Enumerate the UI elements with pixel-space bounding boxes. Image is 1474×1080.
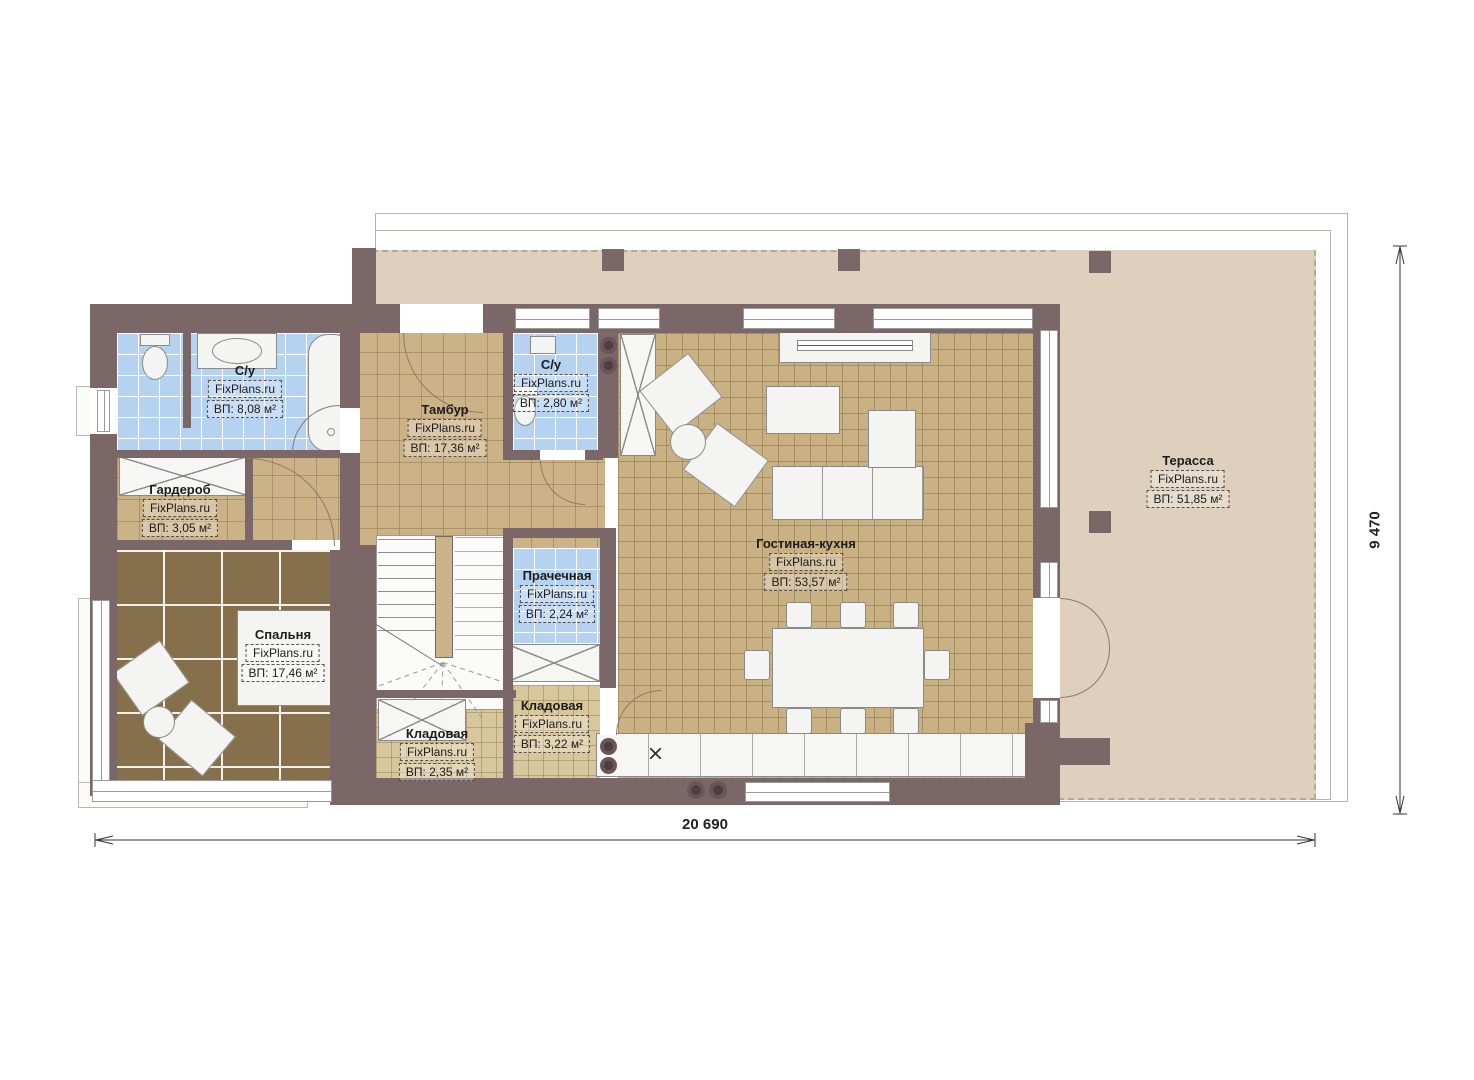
dining-chair <box>840 708 866 734</box>
room-area: ВП: 17,46 м² <box>242 664 325 682</box>
room-label-storage-a: Кладовая FixPlans.ru ВП: 2,35 м² <box>399 726 475 781</box>
sofa-main-symbol <box>772 466 924 520</box>
wall-corner-stub <box>1055 738 1110 765</box>
room-area: ВП: 8,08 м² <box>207 400 283 418</box>
room-label-wardrobe: Гардероб FixPlans.ru ВП: 3,05 м² <box>142 482 218 537</box>
wall-right-mid <box>1033 508 1060 562</box>
wall-bathsmall-bottom-a <box>503 450 540 460</box>
room-name: С/у <box>235 363 255 378</box>
dining-chair <box>786 708 812 734</box>
terrace-pillar <box>838 249 860 271</box>
dimension-height: 9 470 <box>1386 243 1414 817</box>
window-kitchen-bottom <box>745 782 890 802</box>
room-area: ВП: 51,85 м² <box>1147 490 1230 508</box>
window-right-2 <box>1040 562 1058 598</box>
room-watermark: FixPlans.ru <box>514 374 588 392</box>
terrace-pillar <box>602 249 624 271</box>
room-name: Кладовая <box>406 726 468 741</box>
room-watermark: FixPlans.ru <box>408 419 482 437</box>
stair-treads-upper <box>455 537 503 657</box>
window-top-1 <box>515 308 590 329</box>
room-label-vestibule: Тамбур FixPlans.ru ВП: 17,36 м² <box>404 402 487 457</box>
room-area: ВП: 53,57 м² <box>765 573 848 591</box>
room-label-laundry: Прачечная FixPlans.ru ВП: 2,24 м² <box>519 568 595 623</box>
dimension-width-label: 20 690 <box>92 816 1318 833</box>
wall-hall-bath-lower <box>340 453 360 548</box>
room-name: Терасса <box>1162 453 1214 468</box>
washer-drum <box>600 357 617 374</box>
coffee-table-round <box>670 424 706 460</box>
room-label-terrace: Терасса FixPlans.ru ВП: 51,85 м² <box>1147 453 1230 508</box>
dimension-height-line <box>1386 243 1414 817</box>
wall-bedroom-right <box>330 545 376 778</box>
room-watermark: FixPlans.ru <box>520 585 594 603</box>
kitchen-counter <box>596 733 1035 777</box>
dining-chair <box>893 708 919 734</box>
room-area: ВП: 2,80 м² <box>513 394 589 412</box>
room-name: Тамбур <box>421 402 468 417</box>
room-area: ВП: 17,36 м² <box>404 439 487 457</box>
stair-winder-line <box>443 662 510 685</box>
terrace-pillar <box>1089 251 1111 273</box>
boiler-drum <box>600 738 617 755</box>
bathroom-door-opening <box>340 408 360 453</box>
dining-chair <box>744 650 770 680</box>
room-watermark: FixPlans.ru <box>246 644 320 662</box>
wall-bath-partition <box>183 333 191 428</box>
room-watermark: FixPlans.ru <box>1151 470 1225 488</box>
small-sink-symbol <box>530 336 556 354</box>
window-right-3 <box>1040 700 1058 723</box>
window-right-1 <box>1040 330 1058 508</box>
entrance-door-opening <box>400 304 483 333</box>
room-label-bedroom: Спальня FixPlans.ru ВП: 17,46 м² <box>242 627 325 682</box>
chimney-drum <box>687 781 705 799</box>
room-name: Прачечная <box>523 568 592 583</box>
wall-corner-vert <box>1025 723 1055 805</box>
sofa-chaise-symbol <box>868 410 916 468</box>
storage-b-door-opening <box>600 688 616 735</box>
room-label-living-kitchen: Гостиная-кухня FixPlans.ru ВП: 53,57 м² <box>756 536 856 591</box>
room-watermark: FixPlans.ru <box>208 380 282 398</box>
wall-bathsmall-left <box>503 333 513 458</box>
room-name: Кладовая <box>521 698 583 713</box>
boiler-drum <box>600 757 617 774</box>
dining-table-symbol <box>772 628 924 708</box>
window-left <box>97 390 110 432</box>
wall-stairs-laundry <box>503 528 513 783</box>
wall-hall-bath-upper <box>340 333 360 408</box>
room-area: ВП: 2,24 м² <box>519 605 595 623</box>
room-name: Гостиная-кухня <box>756 536 856 551</box>
laundry-closet <box>508 644 600 682</box>
room-label-bathroom-main: С/у FixPlans.ru ВП: 8,08 м² <box>207 363 283 418</box>
window-top-3 <box>743 308 835 329</box>
bathsmall-door-opening <box>540 450 585 460</box>
side-table-symbol <box>143 706 175 738</box>
room-watermark: FixPlans.ru <box>400 743 474 761</box>
room-watermark: FixPlans.ru <box>143 499 217 517</box>
dining-chair <box>893 602 919 628</box>
window-bedroom-bottom <box>92 780 332 802</box>
dining-chair <box>786 602 812 628</box>
coffee-table-symbol <box>766 386 840 434</box>
room-watermark: FixPlans.ru <box>769 553 843 571</box>
stair-treads <box>378 539 435 633</box>
room-label-bathroom-small: С/у FixPlans.ru ВП: 2,80 м² <box>513 357 589 412</box>
dimension-width-line <box>92 833 1318 847</box>
toilet-tank-symbol <box>140 334 170 346</box>
room-area: ВП: 3,05 м² <box>142 519 218 537</box>
room-name: Гардероб <box>149 482 210 497</box>
dining-chair <box>840 602 866 628</box>
wall-porch-step <box>352 248 376 306</box>
window-bedroom-left <box>92 600 110 796</box>
room-label-storage-b: Кладовая FixPlans.ru ВП: 3,22 м² <box>514 698 590 753</box>
room-area: ВП: 3,22 м² <box>514 735 590 753</box>
floor-plan-canvas: С/у FixPlans.ru ВП: 8,08 м² Гардероб Fix… <box>0 0 1474 1080</box>
sink-basin-symbol <box>212 338 262 364</box>
window-top-4 <box>873 308 1033 329</box>
room-name: С/у <box>541 357 561 372</box>
room-watermark: FixPlans.ru <box>515 715 589 733</box>
window-top-2 <box>598 308 660 329</box>
hob-x-mark <box>650 748 661 759</box>
tv-symbol <box>797 340 913 351</box>
dimension-height-label: 9 470 <box>1366 511 1383 549</box>
washer-drum <box>600 337 617 354</box>
dining-chair <box>924 650 950 680</box>
room-name: Спальня <box>255 627 311 642</box>
staircase <box>376 535 504 710</box>
wall-storage-a-top <box>376 690 516 698</box>
stair-center-wall <box>435 536 453 658</box>
toilet-bowl-symbol <box>142 346 168 380</box>
terrace-pillar <box>1089 511 1111 533</box>
room-area: ВП: 2,35 м² <box>399 763 475 781</box>
dimension-width: 20 690 <box>92 816 1318 847</box>
terrace-door-opening <box>1033 598 1060 698</box>
chimney-drum <box>709 781 727 799</box>
